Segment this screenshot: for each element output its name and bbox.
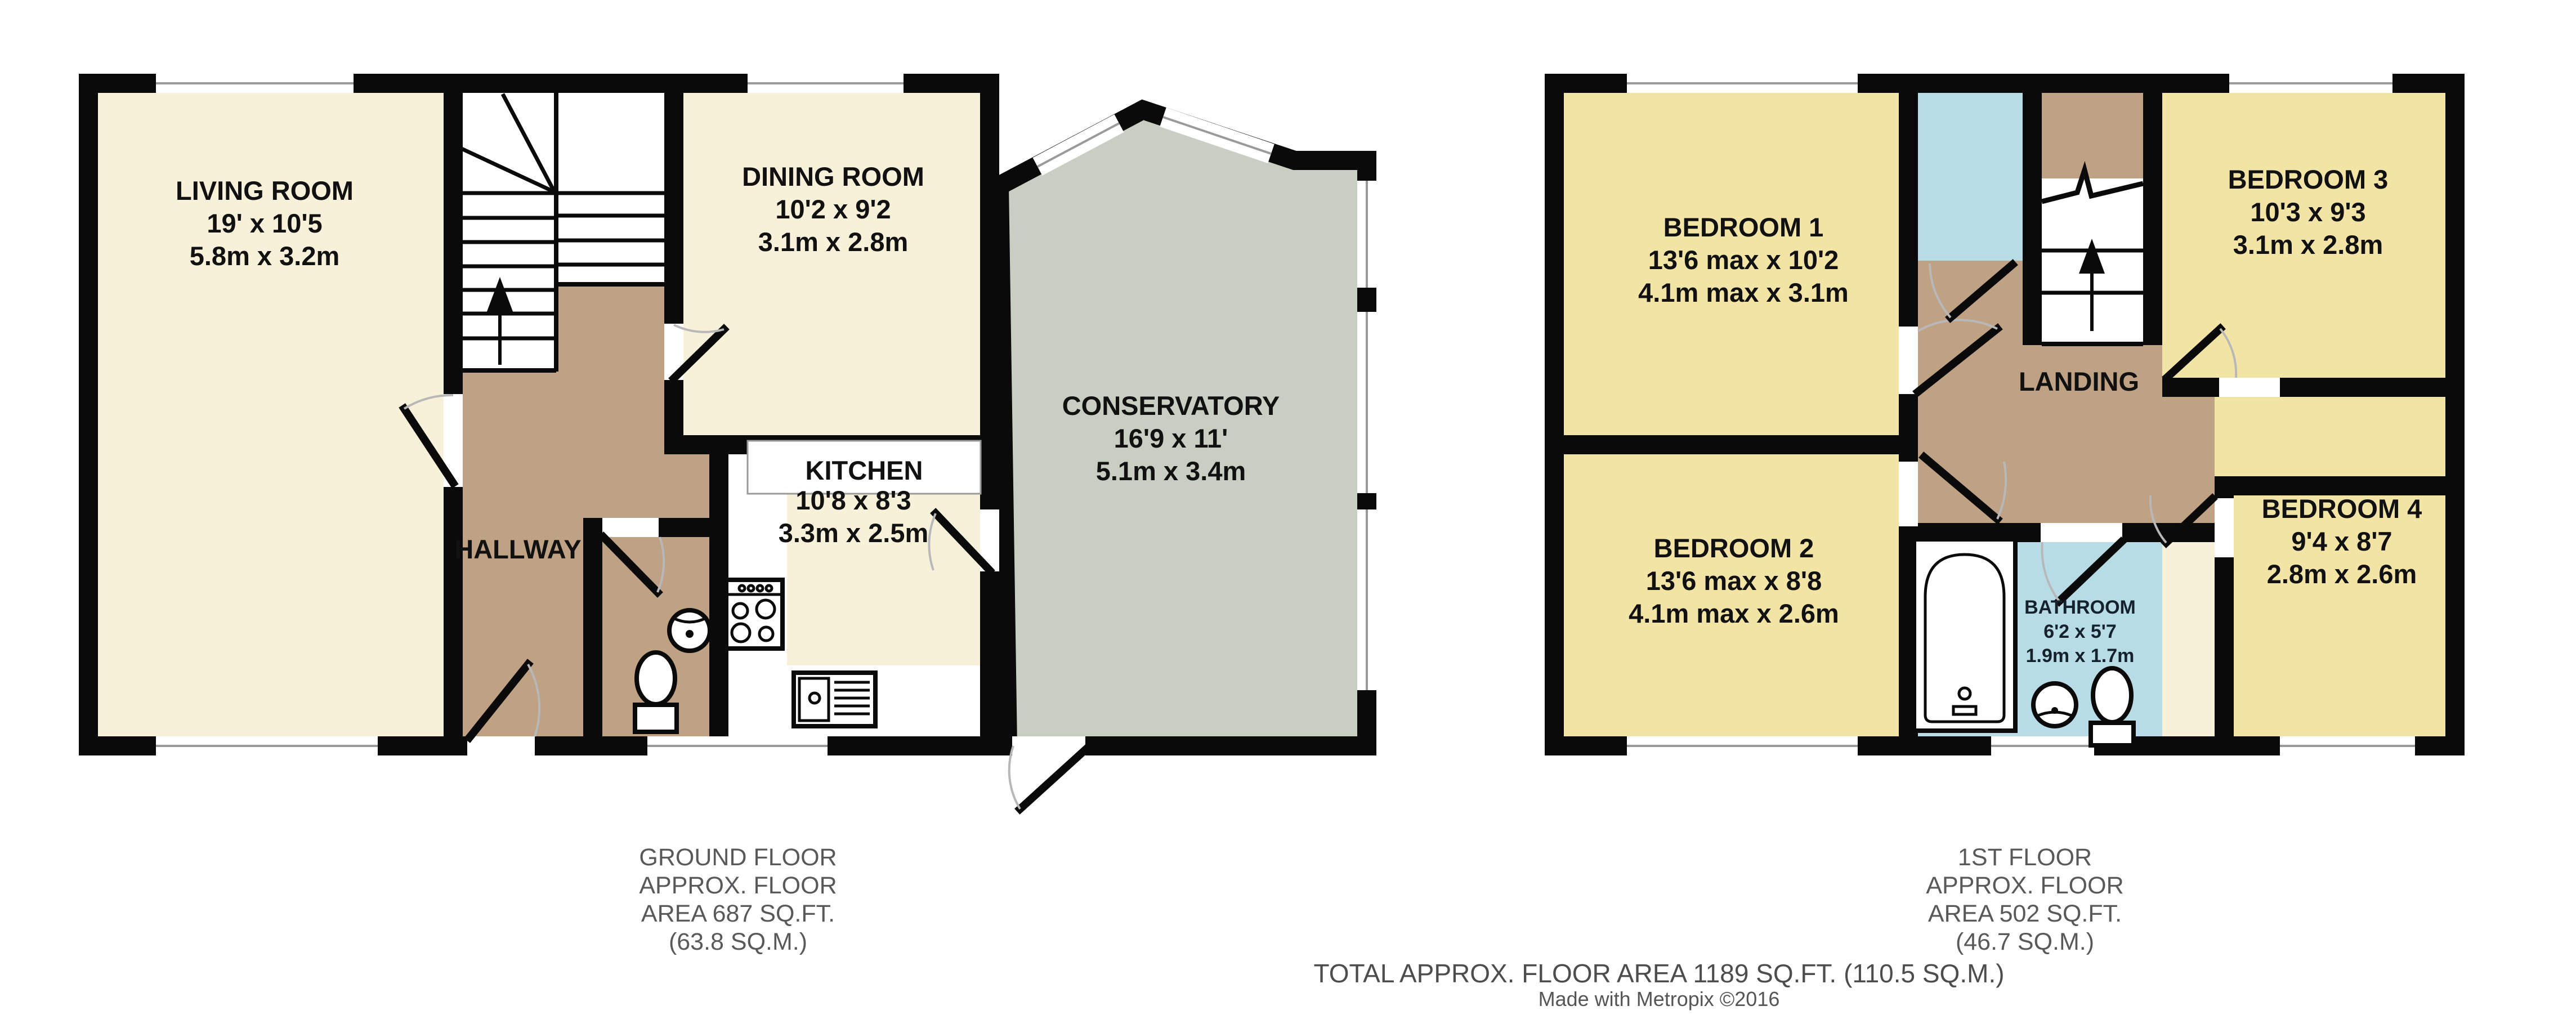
living-room-metric: 5.8m x 3.2m: [190, 241, 340, 271]
bedroom-4-label: BEDROOM 4: [2262, 494, 2422, 524]
bedroom-1-metric: 4.1m max x 3.1m: [1638, 278, 1849, 307]
bathroom-metric: 1.9m x 1.7m: [2026, 645, 2135, 667]
caption-line: AREA 687 SQ.FT.: [513, 900, 963, 928]
bedroom-3-label: BEDROOM 3: [2228, 164, 2389, 194]
total-area-text: TOTAL APPROX. FLOOR AREA 1189 SQ.FT. (11…: [927, 958, 2391, 989]
bedroom-2-label: BEDROOM 2: [1654, 533, 1814, 563]
kitchen-sink-icon: [794, 673, 875, 726]
first-floor-plan: BEDROOM 1 13'6 max x 10'2 4.1m max x 3.1…: [1545, 74, 2465, 755]
ground-floor-caption: GROUND FLOOR APPROX. FLOOR AREA 687 SQ.F…: [513, 843, 963, 956]
kitchen-label: KITCHEN: [806, 455, 923, 485]
conservatory-label: CONSERVATORY: [1062, 391, 1280, 421]
floorplan-drawing: LIVING ROOM 19' x 10'5 5.8m x 3.2m DININ…: [0, 0, 2576, 828]
caption-line: AREA 502 SQ.FT.: [1800, 900, 2250, 928]
kitchen-metric: 3.3m x 2.5m: [779, 518, 929, 548]
dining-room-metric: 3.1m x 2.8m: [758, 227, 909, 257]
wc-toilet-icon: [635, 652, 677, 732]
kitchen-imperial: 10'8 x 8'3: [795, 485, 911, 515]
bedroom-4-imperial: 9'4 x 8'7: [2291, 526, 2392, 556]
wc-basin-icon: [669, 610, 710, 651]
bathroom-label: BATHROOM: [2024, 597, 2136, 618]
caption-line: APPROX. FLOOR: [513, 871, 963, 900]
bathroom-basin-icon: [2033, 683, 2076, 726]
conservatory-door: [1020, 749, 1086, 809]
bedroom-4-upper: [2215, 397, 2465, 476]
conservatory-imperial: 16'9 x 11': [1114, 423, 1228, 453]
first-floor-caption: 1ST FLOOR APPROX. FLOOR AREA 502 SQ.FT. …: [1800, 843, 2250, 956]
dining-room-imperial: 10'2 x 9'2: [775, 194, 891, 224]
bedroom-2-metric: 4.1m max x 2.6m: [1629, 598, 1839, 628]
ground-floor-plan: LIVING ROOM 19' x 10'5 5.8m x 3.2m DININ…: [79, 74, 1376, 809]
dining-room-label: DINING ROOM: [742, 162, 924, 191]
bedroom-1-label: BEDROOM 1: [1663, 212, 1824, 242]
conservatory-metric: 5.1m x 3.4m: [1096, 456, 1246, 486]
bedroom-3-imperial: 10'3 x 9'3: [2250, 197, 2365, 227]
caption-line: (63.8 SQ.M.): [513, 928, 963, 956]
landing-label: LANDING: [2019, 366, 2139, 396]
floorplan-page: LIVING ROOM 19' x 10'5 5.8m x 3.2m DININ…: [0, 0, 2576, 1015]
bath-icon: [1914, 539, 2015, 731]
hallway-label: HALLWAY: [454, 534, 581, 564]
metropix-credit: Made with Metropix ©2016: [927, 987, 2391, 1011]
caption-line: 1ST FLOOR: [1800, 843, 2250, 871]
bedroom-1-imperial: 13'6 max x 10'2: [1648, 245, 1839, 275]
caption-line: (46.7 SQ.M.): [1800, 928, 2250, 956]
living-room-imperial: 19' x 10'5: [207, 208, 322, 238]
living-room-label: LIVING ROOM: [176, 176, 354, 205]
bathroom-imperial: 6'2 x 5'7: [2043, 621, 2117, 642]
caption-line: APPROX. FLOOR: [1800, 871, 2250, 900]
bedroom-4-metric: 2.8m x 2.6m: [2267, 559, 2417, 589]
caption-line: GROUND FLOOR: [513, 843, 963, 871]
bedroom-3-metric: 3.1m x 2.8m: [2233, 230, 2383, 260]
bathroom-toilet-icon: [2091, 668, 2134, 745]
bedroom-2-imperial: 13'6 max x 8'8: [1646, 566, 1822, 596]
airing-cupboard: [1918, 74, 2023, 261]
stove-icon: [726, 580, 782, 649]
cupboard-strip: [2162, 542, 2215, 736]
